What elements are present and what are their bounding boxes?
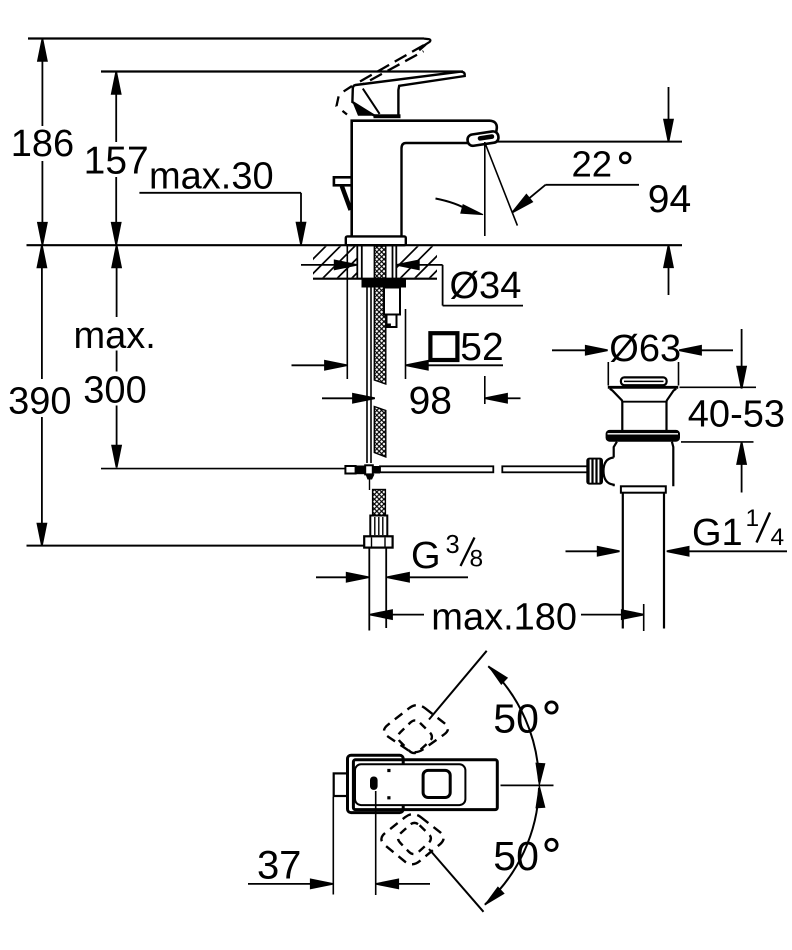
svg-text:Ø63: Ø63 xyxy=(609,328,681,370)
svg-text:G1: G1 xyxy=(692,512,743,554)
svg-text:3: 3 xyxy=(446,531,460,559)
svg-text:157: 157 xyxy=(84,140,149,183)
svg-text:37: 37 xyxy=(257,844,302,888)
svg-text:22: 22 xyxy=(572,144,613,185)
svg-text:8: 8 xyxy=(470,545,484,572)
svg-text:4: 4 xyxy=(771,524,785,551)
svg-text:186: 186 xyxy=(11,123,74,165)
svg-text:94: 94 xyxy=(648,178,691,221)
svg-text:40-53: 40-53 xyxy=(688,393,785,435)
svg-text:52: 52 xyxy=(460,326,503,369)
svg-text:max.30: max.30 xyxy=(149,156,274,198)
svg-text:50: 50 xyxy=(493,833,539,879)
svg-text:max.180: max.180 xyxy=(431,596,577,638)
svg-text:Ø34: Ø34 xyxy=(450,265,522,307)
svg-text:300: 300 xyxy=(83,370,146,412)
svg-text:98: 98 xyxy=(409,379,452,422)
svg-text:1: 1 xyxy=(746,505,760,532)
svg-text:G: G xyxy=(411,535,441,577)
svg-text:max.: max. xyxy=(74,315,156,357)
svg-text:50: 50 xyxy=(493,695,539,741)
svg-text:390: 390 xyxy=(8,380,71,422)
